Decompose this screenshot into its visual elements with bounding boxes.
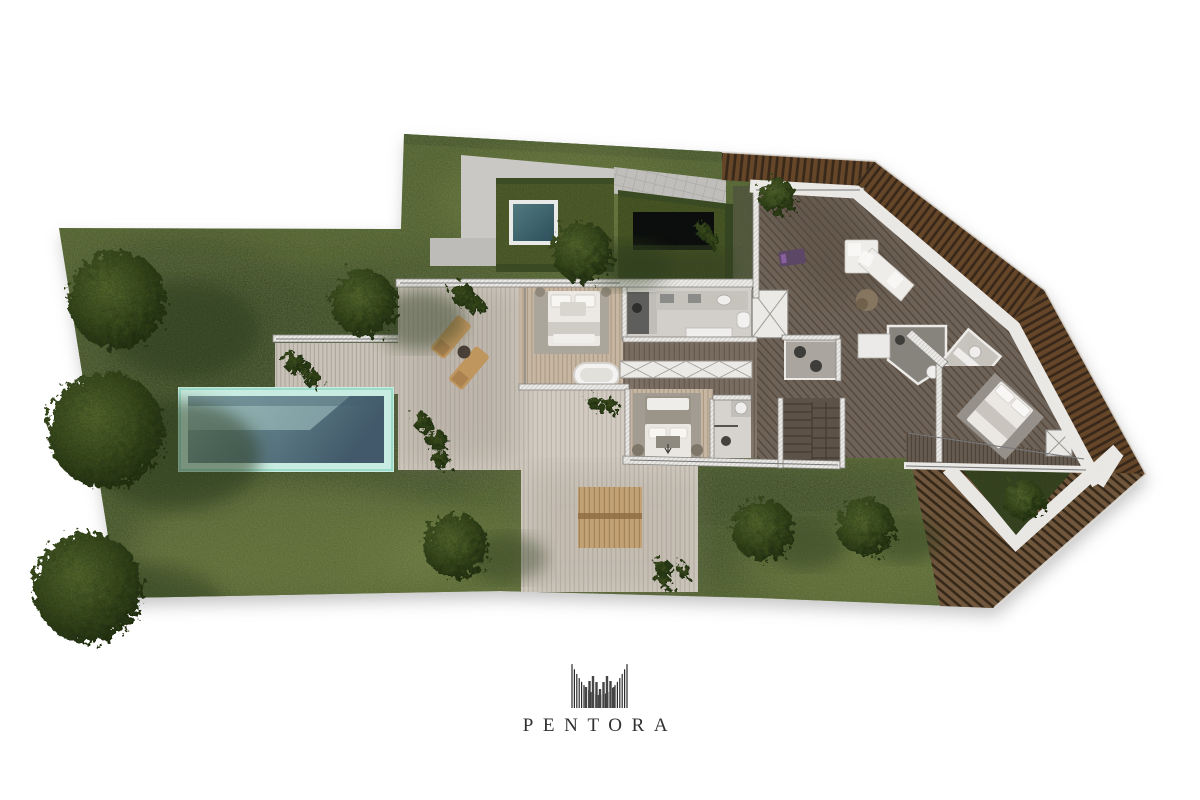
svg-text:PENTORA: PENTORA [523, 715, 677, 736]
